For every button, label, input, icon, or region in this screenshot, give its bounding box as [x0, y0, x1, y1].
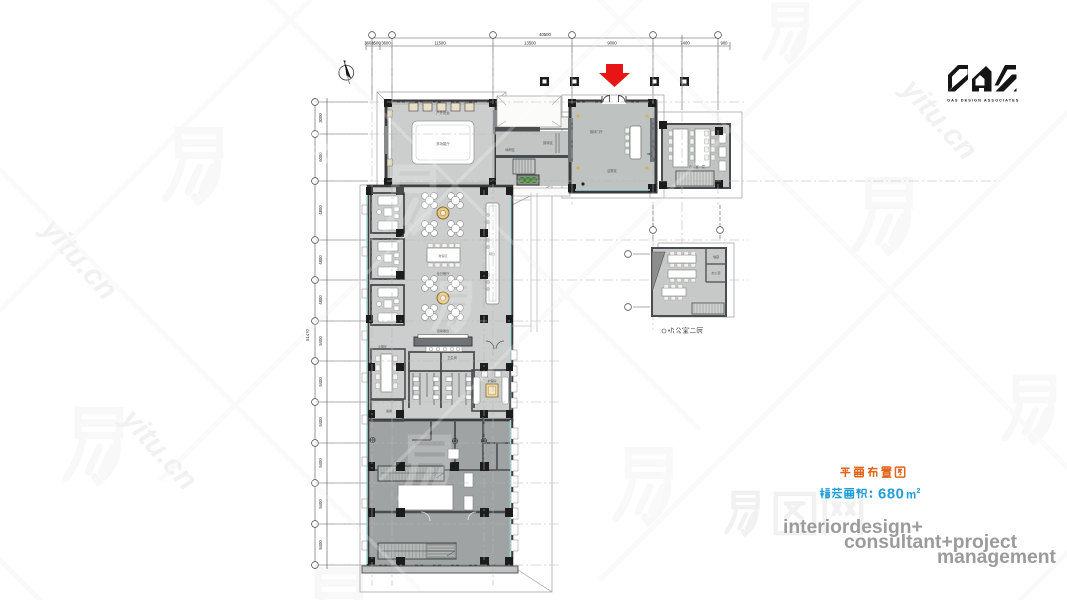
svg-text:休闲区: 休闲区: [505, 147, 515, 152]
svg-text:储藏: 储藏: [713, 254, 719, 259]
svg-text:13500: 13500: [524, 41, 536, 46]
svg-text:自助餐台: 自助餐台: [437, 328, 449, 333]
svg-text:yitu.cn: yitu.cn: [33, 211, 124, 306]
svg-text:yitu.cn: yitu.cn: [893, 71, 984, 166]
svg-text:m: m: [906, 489, 916, 501]
svg-text:4800: 4800: [318, 205, 323, 215]
svg-text:40500: 40500: [539, 32, 551, 37]
svg-text:5400: 5400: [318, 458, 323, 468]
svg-text:9000: 9000: [607, 41, 617, 46]
svg-text:多功能厅: 多功能厅: [436, 141, 450, 146]
svg-text:小餐厅: 小餐厅: [378, 344, 387, 349]
svg-text:5400: 5400: [318, 377, 323, 387]
svg-text:户外阳台: 户外阳台: [436, 110, 450, 115]
svg-text:散客区: 散客区: [438, 253, 447, 258]
svg-text:yitu.cn: yitu.cn: [243, 67, 349, 173]
svg-text:5400: 5400: [318, 499, 323, 509]
svg-text:护理房: 护理房: [487, 378, 496, 383]
svg-text:5400: 5400: [318, 540, 323, 550]
svg-text:1500: 1500: [371, 41, 381, 46]
svg-text:5400: 5400: [318, 417, 323, 427]
svg-text:4800: 4800: [318, 295, 323, 305]
svg-text:卫生间: 卫生间: [447, 355, 457, 360]
svg-text:全日餐厅: 全日餐厅: [437, 271, 451, 276]
svg-text:备餐: 备餐: [386, 408, 392, 413]
svg-text:迎宾区: 迎宾区: [607, 168, 617, 173]
svg-text:680: 680: [878, 487, 905, 503]
svg-text:接待区: 接待区: [543, 140, 553, 145]
svg-text:5400: 5400: [318, 336, 323, 346]
svg-text:yitu.cn: yitu.cn: [673, 407, 779, 513]
svg-text:吧台: 吧台: [489, 251, 495, 256]
svg-text:OAS DESIGN ASSOCIATES: OAS DESIGN ASSOCIATES: [947, 98, 1019, 103]
svg-text:4800: 4800: [318, 255, 323, 265]
svg-text:11500: 11500: [434, 41, 446, 46]
svg-text:900: 900: [721, 41, 729, 46]
svg-text:2: 2: [917, 488, 921, 495]
svg-text:办公室: 办公室: [711, 270, 720, 275]
svg-text:接待门厅: 接待门厅: [590, 129, 604, 134]
svg-text:3600: 3600: [381, 41, 391, 46]
